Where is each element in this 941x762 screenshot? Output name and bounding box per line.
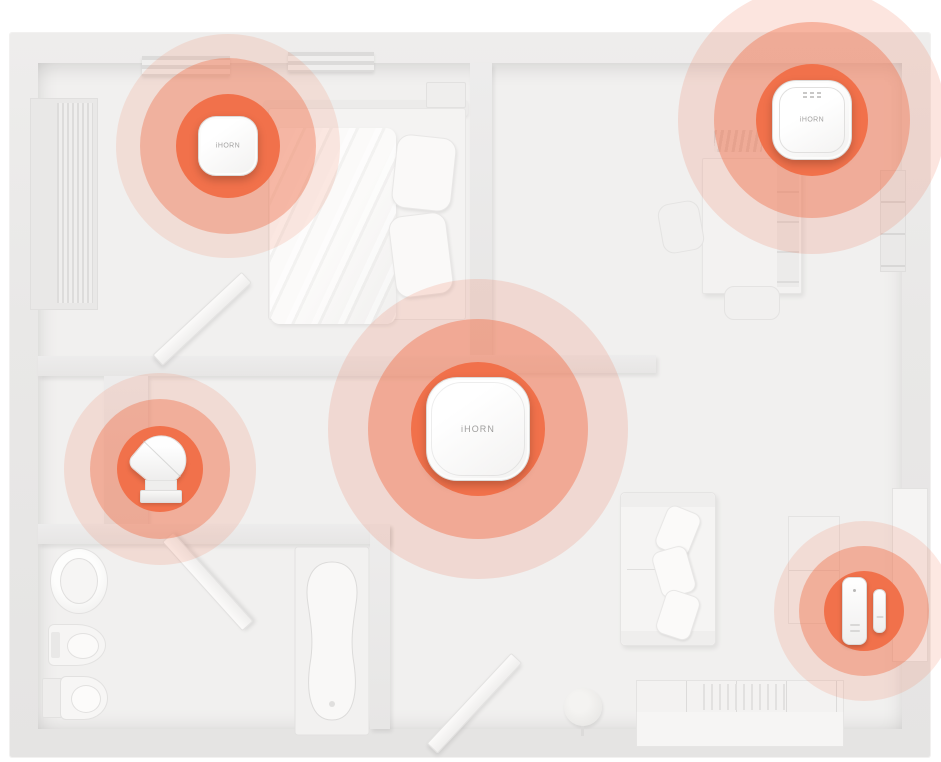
floorplan-scene: iHORNiHORNiHORN bbox=[0, 0, 941, 762]
smoke-detector-study[interactable]: iHORN bbox=[772, 80, 852, 160]
alarm-hub-central[interactable]: iHORN bbox=[426, 377, 530, 481]
alarm-hub-central-label: iHORN bbox=[427, 424, 529, 434]
air-duct-detector-base bbox=[140, 490, 182, 503]
smoke-detector-bedroom[interactable]: iHORN bbox=[198, 116, 258, 176]
smoke-detector-bedroom-label: iHORN bbox=[199, 143, 257, 150]
door-window-sensor-magnet-slit bbox=[876, 616, 883, 618]
door-window-sensor[interactable] bbox=[842, 577, 867, 645]
door-window-sensor-slit bbox=[850, 624, 860, 626]
air-duct-detector[interactable] bbox=[128, 433, 192, 505]
device-layer: iHORNiHORNiHORN bbox=[0, 0, 941, 762]
smoke-detector-study-vent-holes bbox=[803, 92, 821, 98]
door-window-sensor-slit bbox=[850, 630, 860, 632]
door-window-sensor-led bbox=[853, 589, 856, 592]
door-window-sensor-magnet[interactable] bbox=[873, 589, 886, 633]
smoke-detector-study-label: iHORN bbox=[773, 117, 851, 124]
